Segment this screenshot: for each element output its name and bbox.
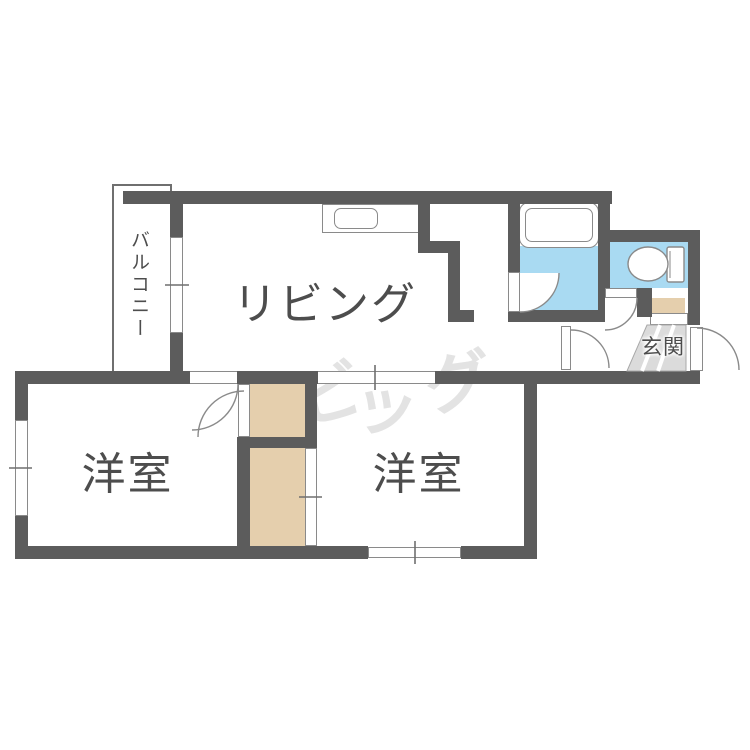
- closet-lower: [250, 448, 305, 546]
- wall-bath-bottom: [508, 310, 610, 322]
- bathtub-icon: [519, 202, 599, 248]
- bathtub-inner: [525, 208, 593, 242]
- entrance-label: 玄関: [632, 331, 694, 361]
- window-left: [15, 420, 28, 516]
- wall-bath-left-upper: [508, 204, 520, 272]
- wall-bedroom-left-top: [15, 371, 190, 384]
- wall-right-upper: [688, 230, 700, 325]
- closet-upper-door: [238, 384, 250, 437]
- wall-lshape-b: [418, 241, 460, 253]
- wall-living-left-lower: [170, 333, 183, 372]
- wall-closet-left: [237, 448, 250, 546]
- closet-upper: [250, 384, 305, 437]
- hall-door-leaf: [561, 326, 571, 370]
- bedroom-left-door-gap: [190, 371, 237, 384]
- wall-lshape-d: [448, 310, 474, 322]
- wall-toilet-stub: [637, 288, 652, 317]
- bathroom-floor: [520, 246, 598, 310]
- bedroom-left-door-arc: [192, 384, 238, 430]
- closet-lower-door: [305, 448, 317, 546]
- window-bottom: [368, 547, 461, 558]
- balcony-label: バルコニー: [126, 210, 153, 360]
- bathroom-door-leaf: [508, 272, 520, 312]
- wall-bedroom-right-right: [524, 371, 537, 559]
- floor-plan: ビ ッ グ: [0, 0, 750, 750]
- kitchen-sink-icon: [334, 208, 378, 229]
- wall-left-upper: [15, 371, 28, 420]
- toilet-door-leaf: [605, 288, 637, 298]
- wall-hall-bottom: [435, 371, 700, 384]
- wall-bath-right: [598, 204, 610, 322]
- front-door-arc: [697, 328, 739, 370]
- wall-toilet-top: [598, 230, 700, 242]
- wall-closet-top: [237, 371, 320, 384]
- wall-bottom-left: [15, 546, 368, 559]
- toilet-room-floor: [610, 242, 688, 288]
- hall-door-arc: [571, 330, 609, 368]
- living-room-label: リビング: [233, 268, 403, 332]
- sliding-door-living-bedroom: [318, 371, 435, 384]
- balcony-window-door: [170, 237, 183, 333]
- wall-closet-mid: [237, 437, 317, 448]
- entrance-step: [652, 298, 685, 313]
- bedroom-left-label: 洋室: [70, 438, 185, 502]
- entrance-threshold: [650, 313, 688, 325]
- wall-top: [123, 191, 612, 204]
- bedroom-right-label: 洋室: [361, 438, 476, 502]
- wall-living-left-upper: [170, 204, 183, 237]
